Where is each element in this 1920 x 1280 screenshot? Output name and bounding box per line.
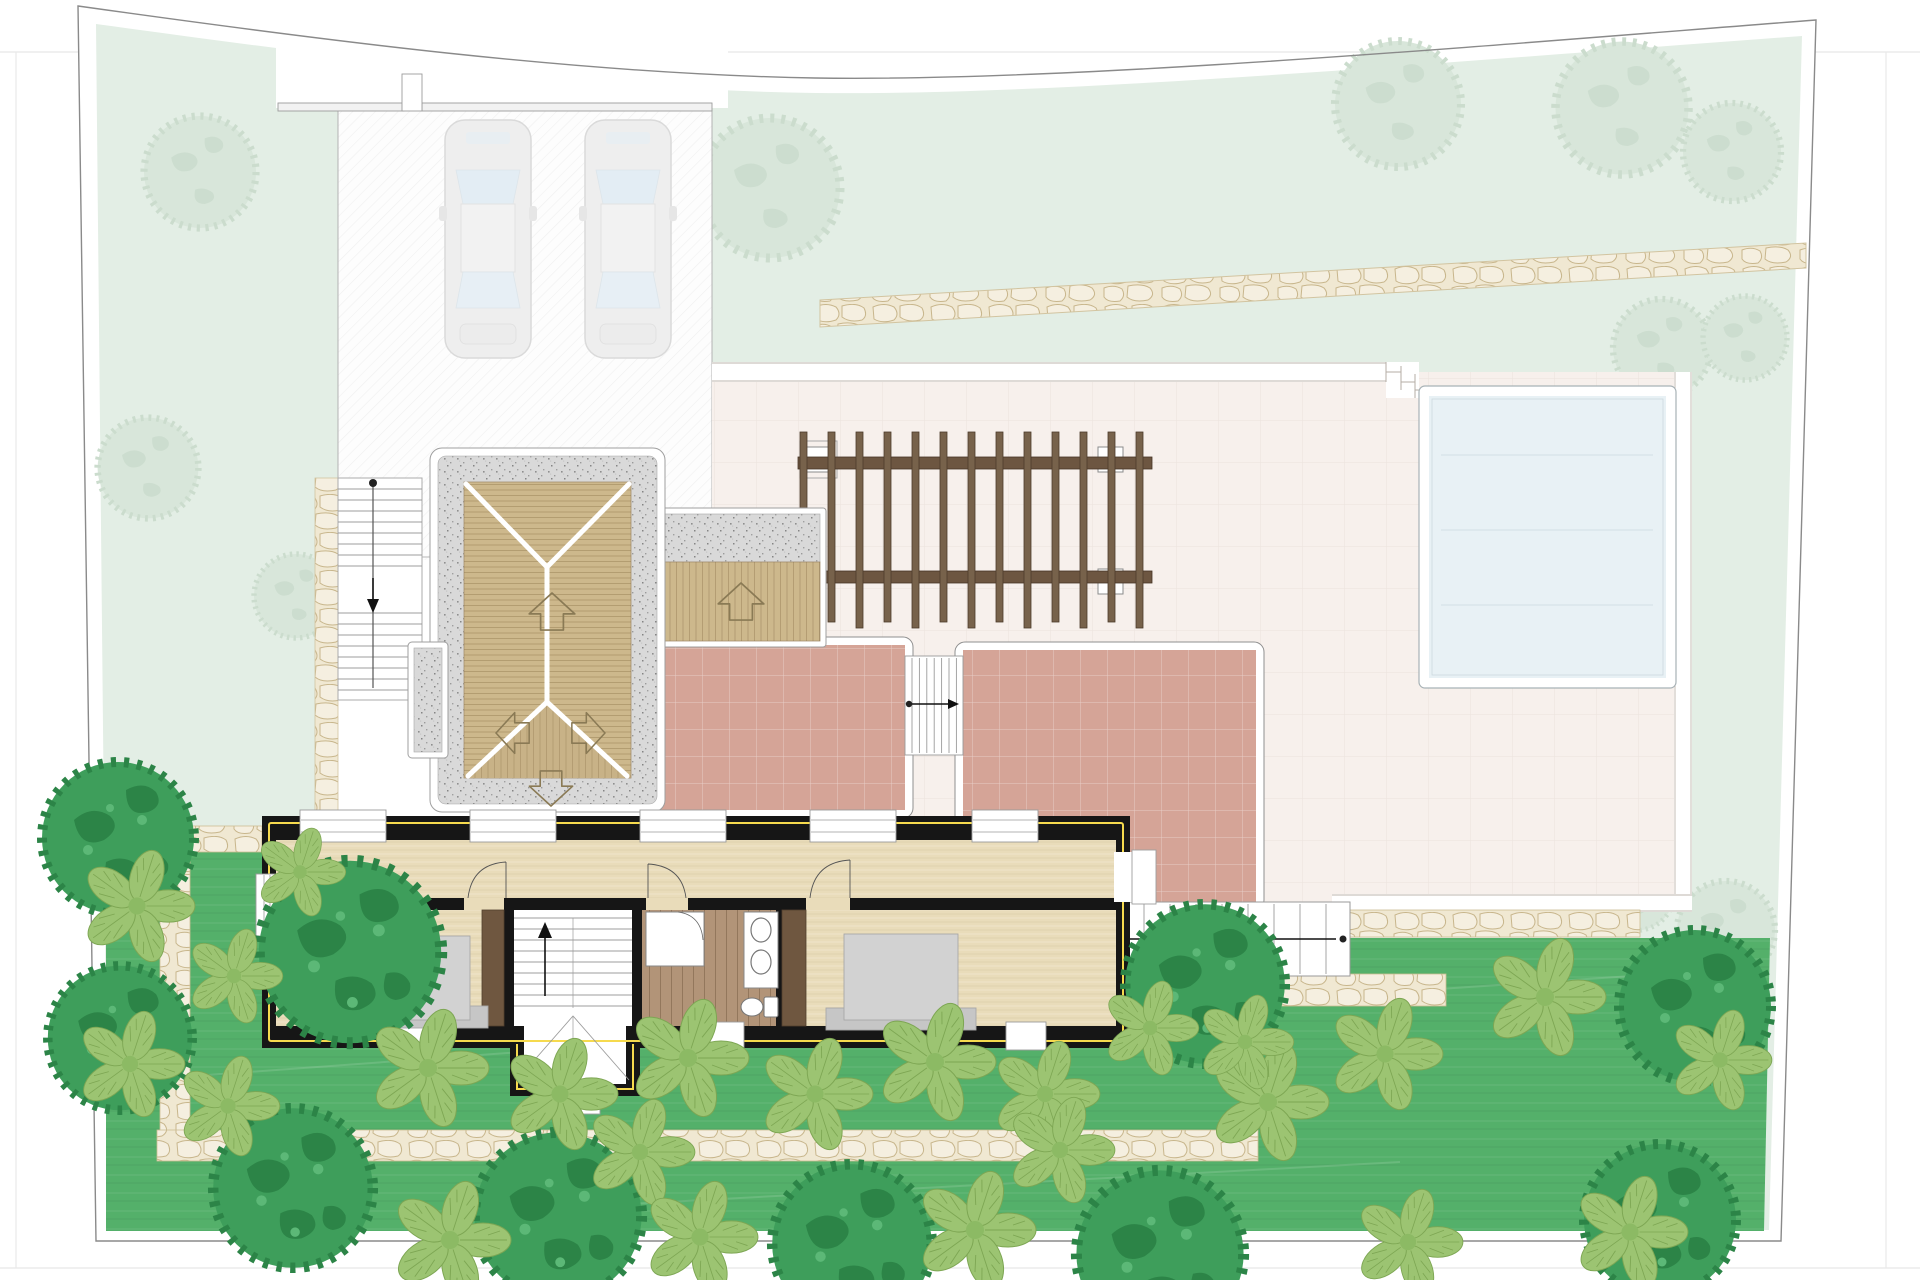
entry-path xyxy=(315,478,338,828)
deck-edge-right xyxy=(1674,372,1692,912)
car-2 xyxy=(579,120,677,358)
handrail-dot xyxy=(369,479,377,487)
window-5 xyxy=(972,810,1038,842)
terrace-1 xyxy=(652,637,913,818)
window-2 xyxy=(470,810,556,842)
main-roof xyxy=(430,448,665,812)
entrance-canopy xyxy=(655,508,826,647)
site-plan-canvas xyxy=(0,0,1920,1280)
deck-edge-top xyxy=(712,362,1386,382)
deck-edge-bottom xyxy=(1332,894,1692,912)
window-4 xyxy=(810,810,896,842)
pool xyxy=(1419,386,1676,688)
pool-water xyxy=(1429,396,1666,678)
window-3 xyxy=(640,810,726,842)
terrace-stairs xyxy=(905,656,963,755)
sink-1 xyxy=(751,918,771,942)
door-opening-east xyxy=(1114,852,1132,902)
car-1 xyxy=(439,120,537,358)
carport-pillar xyxy=(402,74,422,111)
pool-steps xyxy=(1386,362,1419,398)
stone-path-connector xyxy=(190,826,262,852)
sink-2 xyxy=(751,950,771,974)
toilet xyxy=(741,997,778,1017)
stone-path-terrace xyxy=(1336,910,1640,937)
door-step-east xyxy=(1132,850,1156,904)
wardrobe-2 xyxy=(782,910,806,1026)
chimney xyxy=(408,642,448,758)
